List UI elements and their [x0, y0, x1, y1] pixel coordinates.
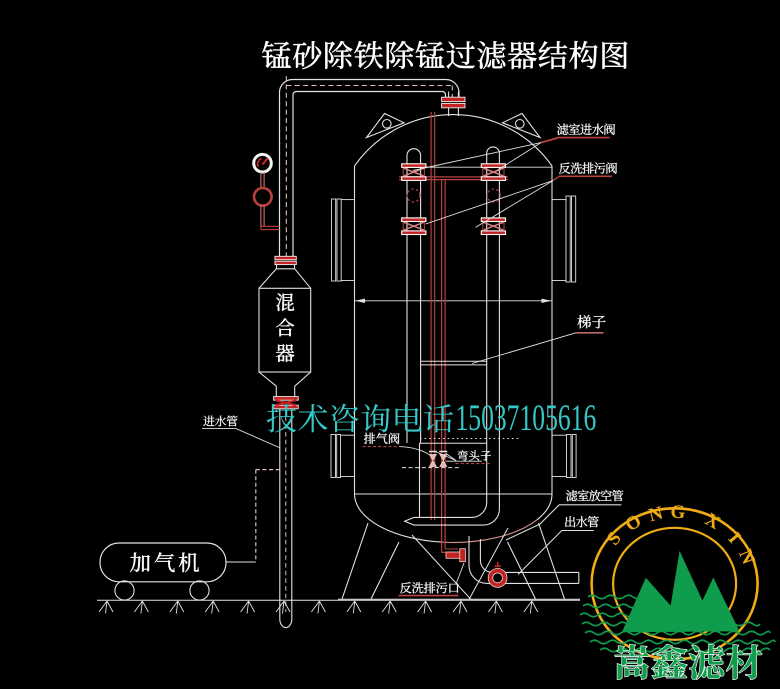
svg-text:15037105616: 15037105616 [456, 397, 597, 438]
svg-text:G: G [670, 502, 686, 524]
